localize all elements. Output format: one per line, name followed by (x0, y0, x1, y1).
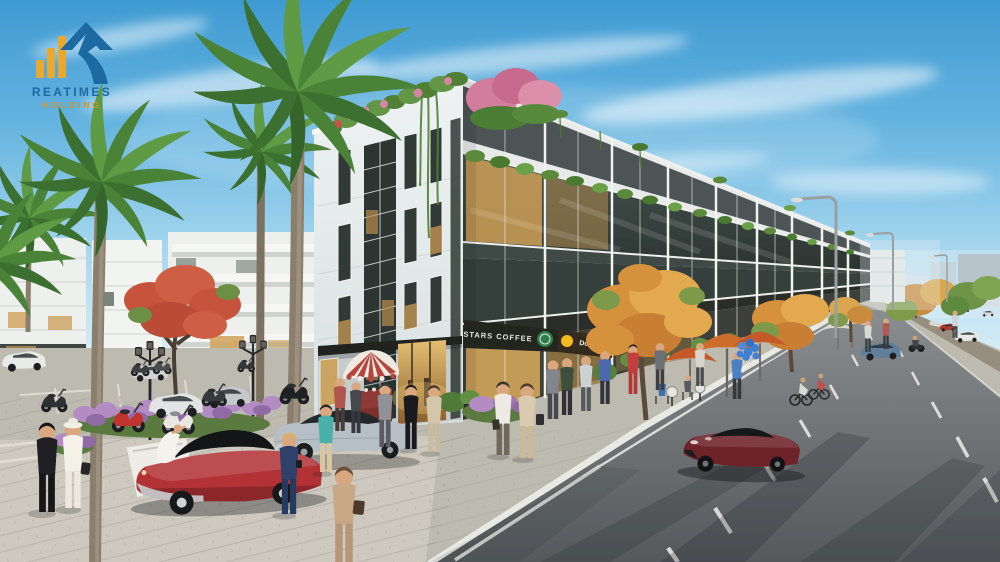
burger-logo-icon (561, 335, 573, 347)
coffee-logo-icon (537, 331, 553, 347)
scene: STARS COFFEE Donal (0, 0, 1000, 562)
logo-subtitle: HOLDING (42, 100, 102, 110)
logo-title: REATIMES (32, 85, 112, 99)
render-viewport: STARS COFFEE Donal (0, 0, 1000, 562)
